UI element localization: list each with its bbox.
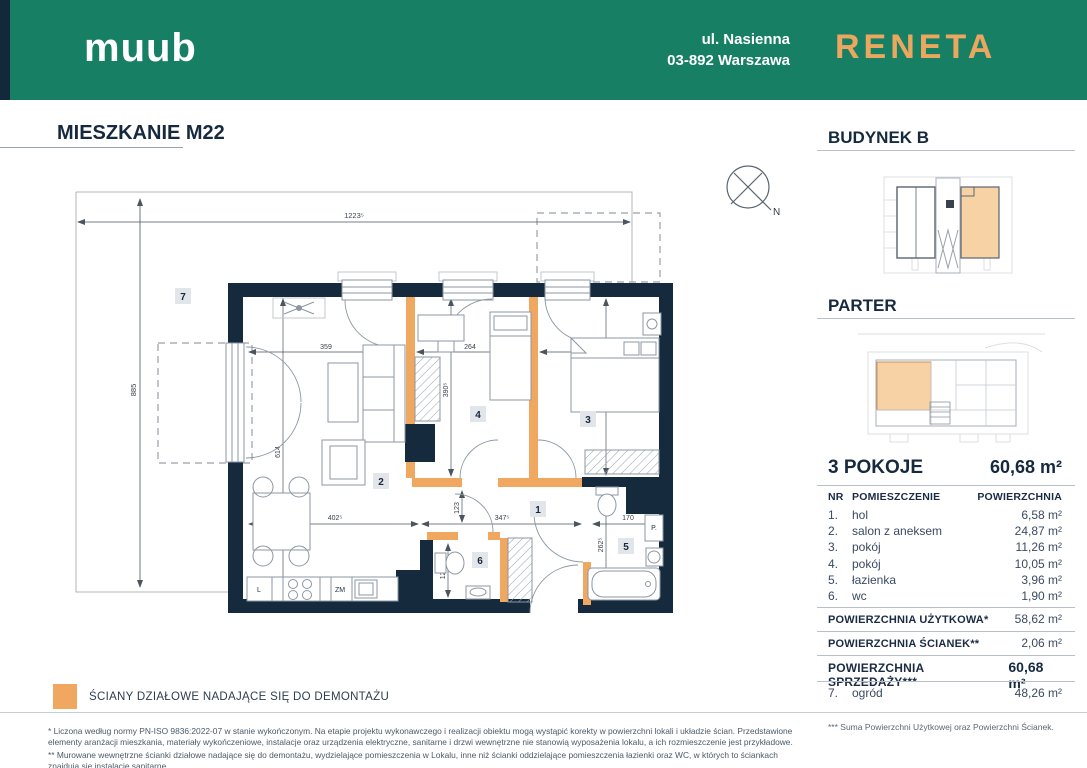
row-name: pokój (852, 557, 1015, 571)
unit-highlight (877, 362, 931, 410)
double-bed (571, 338, 659, 412)
room4-furniture (415, 312, 531, 421)
row-area: 10,05 m² (1015, 557, 1062, 571)
address-line-1: ul. Nasienna (560, 29, 790, 50)
bath-toilet-bowl (598, 494, 616, 516)
row-nr: 1. (828, 508, 852, 522)
col-nr: NR (828, 491, 852, 503)
ogrod-value: 48,26 m² (1015, 686, 1062, 700)
room-label-salon: 2 (373, 473, 389, 489)
ceiling-fan (273, 298, 325, 318)
scianek-row: POWIERZCHNIA ŚCIANEK** 2,06 m² (828, 636, 1062, 650)
row-name: salon z aneksem (852, 524, 1015, 538)
dim-bath-w: 170 (622, 515, 634, 522)
desk-and-chair (418, 315, 464, 352)
table-row: 4. pokój 10,05 m² (828, 556, 1062, 572)
room-label-garden: 7 (175, 288, 191, 304)
floor-key-plan (850, 325, 1087, 460)
budynek-underline (817, 150, 1075, 151)
table-row: 5. łazienka 3,96 m² (828, 572, 1062, 588)
dim-pokoj4-h: 390⁵ (443, 383, 450, 398)
table-row: 3. pokój 11,26 m² (828, 539, 1062, 555)
svg-text:5: 5 (623, 542, 629, 553)
nightstand (643, 313, 661, 335)
wardrobe-room3 (585, 450, 659, 474)
hol-wardrobe (508, 538, 532, 602)
row-nr: 6. (828, 589, 852, 603)
summary-row: 3 POKOJE 60,68 m² (828, 457, 1062, 479)
coffee-table (328, 363, 358, 422)
table-header: NR POMIESZCZENIE POWIERZCHNIA (828, 491, 1062, 503)
rooms-count: 3 POKOJE (828, 457, 923, 479)
ogrod-name: ogród (852, 686, 1015, 700)
room-label-wc: 6 (472, 552, 488, 568)
building-staircase (936, 178, 960, 273)
dim-total-height: 885 (129, 384, 138, 397)
legend-orange-swatch (53, 684, 77, 709)
row-name: pokój (852, 540, 1016, 554)
svg-text:7: 7 (180, 292, 186, 303)
bathtub (588, 568, 660, 600)
sofa (363, 345, 405, 442)
address-line-2: 03-892 Warszawa (560, 50, 790, 71)
parter-title: PARTER (828, 296, 897, 316)
sink (355, 580, 377, 598)
building-block-a (897, 187, 935, 258)
wc-toilet-tank (435, 553, 446, 573)
col-area: POWIERZCHNIA (977, 491, 1062, 503)
compass-icon (727, 166, 771, 210)
wc-toilet-bowl (446, 552, 464, 574)
reneta-logo: RENETA (835, 28, 1055, 67)
armchair (322, 440, 365, 485)
row-area: 6,58 m² (1021, 508, 1062, 522)
row-nr: 2. (828, 524, 852, 538)
footnote-3: *** Suma Powierzchni Użytkowej oraz Powi… (828, 722, 1054, 732)
building-block-b-highlight (961, 187, 999, 258)
apartment-title-underline (0, 147, 183, 148)
compass-north-label: N (773, 207, 780, 218)
svg-text:6: 6 (477, 556, 483, 567)
room-label-pokoj3: 3 (580, 411, 596, 427)
svg-text:2: 2 (378, 477, 384, 488)
dim-pokoj4-w: 264 (464, 344, 476, 351)
table-row: 1. hol 6,58 m² (828, 507, 1062, 523)
divider-2 (817, 607, 1075, 608)
ogrod-row: 7. ogród 48,26 m² (828, 686, 1062, 700)
dim-kitchen-w: 402⁵ (328, 515, 343, 522)
row-area: 24,87 m² (1015, 524, 1062, 538)
svg-text:4: 4 (475, 410, 481, 421)
footer-divider (0, 712, 1087, 713)
floorplan-drawing: 1223⁵ 885 359 264 284 390⁵ 390⁵ 614 402⁵… (40, 150, 800, 670)
ogrod-nr: 7. (828, 686, 852, 700)
room-table: 1. hol 6,58 m² 2. salon z aneksem 24,87 … (828, 507, 1062, 604)
kitchen-counter (247, 577, 398, 601)
footnote-2: ** Murowane wewnętrzne ścianki działowe … (48, 750, 793, 768)
dishwasher-label: ZM (335, 587, 345, 594)
washer-label: P. (651, 525, 657, 532)
muub-logo: MUUB (84, 26, 197, 71)
divider-1 (817, 485, 1075, 486)
header-accent-strip (0, 0, 10, 100)
sprzedazy-label: POWIERZCHNIA SPRZEDAŻY*** (828, 661, 1008, 689)
building-key-plan (860, 160, 1087, 300)
fridge-label: L (257, 587, 261, 594)
uzytkowa-row: POWIERZCHNIA UŻYTKOWA* 58,62 m² (828, 612, 1062, 626)
row-name: hol (852, 508, 1021, 522)
row-area: 11,26 m² (1016, 540, 1062, 554)
dim-total-width: 1223⁵ (344, 211, 364, 220)
row-name: łazienka (852, 573, 1021, 587)
svg-text:3: 3 (585, 415, 591, 426)
row-name: wc (852, 589, 1021, 603)
legend-label: ŚCIANY DZIAŁOWE NADAJĄCE SIĘ DO DEMONTAŻ… (89, 691, 389, 703)
dim-hol-w: 347⁵ (495, 515, 510, 522)
floorplan-page: MUUB ul. Nasienna 03-892 Warszawa RENETA… (0, 0, 1087, 768)
parter-underline (817, 318, 1075, 319)
row-area: 3,96 m² (1021, 573, 1062, 587)
uzytkowa-label: POWIERZCHNIA UŻYTKOWA* (828, 614, 988, 626)
footnote-1: * Liczona według normy PN-ISO 9836:2022-… (48, 726, 793, 748)
svg-text:1: 1 (535, 505, 541, 516)
wardrobe-room4 (415, 357, 440, 421)
divider-3 (817, 631, 1075, 632)
col-name: POMIESZCZENIE (852, 491, 977, 503)
project-address: ul. Nasienna 03-892 Warszawa (560, 29, 790, 71)
row-nr: 4. (828, 557, 852, 571)
room-label-pokoj4: 4 (470, 406, 486, 422)
apartment-title: MIESZKANIE M22 (57, 122, 225, 145)
room-label-hol: 1 (530, 501, 546, 517)
row-nr: 5. (828, 573, 852, 587)
dim-salon-w: 359 (320, 344, 332, 351)
dim-bath-h: 262⁵ (598, 538, 605, 553)
budynek-title: BUDYNEK B (828, 128, 929, 148)
uzytkowa-value: 58,62 m² (1015, 612, 1062, 626)
header-bar: MUUB ul. Nasienna 03-892 Warszawa RENETA (0, 0, 1087, 100)
total-area: 60,68 m² (990, 457, 1062, 478)
room-label-lazienka: 5 (618, 538, 634, 554)
room3-furniture (571, 313, 661, 474)
table-row: 2. salon z aneksem 24,87 m² (828, 523, 1062, 539)
divider-4 (817, 655, 1075, 656)
legend: ŚCIANY DZIAŁOWE NADAJĄCE SIĘ DO DEMONTAŻ… (53, 684, 389, 709)
table-row: 6. wc 1,90 m² (828, 588, 1062, 604)
row-area: 1,90 m² (1021, 589, 1062, 603)
divider-5 (817, 681, 1075, 682)
single-bed (490, 312, 531, 400)
scianek-value: 2,06 m² (1021, 636, 1062, 650)
scianek-label: POWIERZCHNIA ŚCIANEK** (828, 638, 979, 650)
dining-table-set (253, 477, 310, 566)
dim-hol-h: 123 (454, 502, 461, 514)
row-nr: 3. (828, 540, 852, 554)
shaft-block (405, 424, 435, 462)
